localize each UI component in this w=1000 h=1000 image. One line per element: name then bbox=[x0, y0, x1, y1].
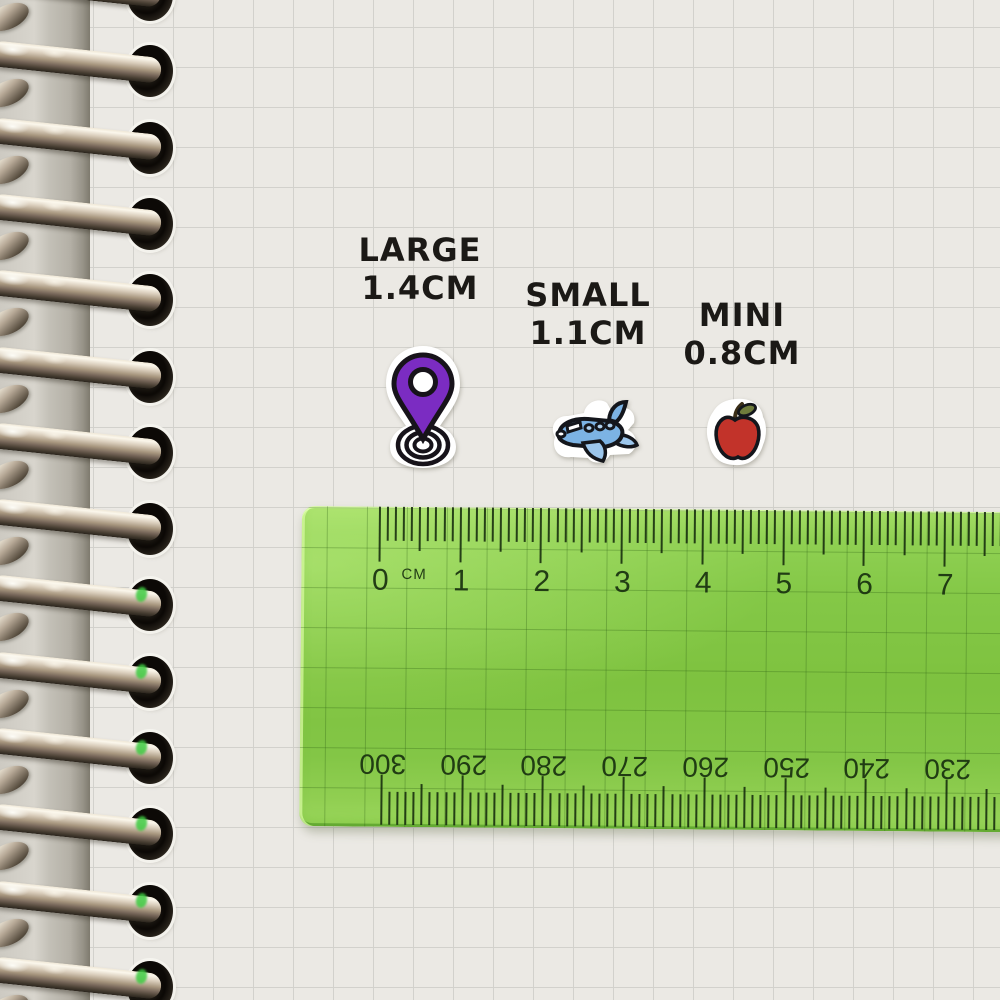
ruler-mm-tick bbox=[897, 796, 899, 829]
ruler-cm-tick bbox=[806, 510, 808, 544]
ruler-cm-tick bbox=[750, 510, 752, 544]
ruler-mm-tick bbox=[606, 794, 608, 827]
ruler-cm-number: 3 bbox=[614, 566, 631, 600]
ruler-mm-tick bbox=[404, 792, 406, 825]
ruler-cm-tick bbox=[952, 512, 954, 546]
ruler-cm-tick bbox=[613, 509, 615, 543]
ruler-mm-tick bbox=[437, 792, 439, 825]
ruler-cm-tick bbox=[960, 512, 962, 546]
ruler-cm-tick bbox=[419, 507, 421, 551]
ruler-cm-tick bbox=[839, 511, 841, 545]
ruler-cm-tick bbox=[524, 508, 526, 542]
ruler-cm-number: 6 bbox=[856, 568, 873, 602]
ruler-mm-number: 270 bbox=[601, 750, 648, 782]
ruler-cm-tick bbox=[443, 507, 445, 541]
apple-sticker bbox=[705, 397, 766, 471]
ruler-mm-tick bbox=[477, 793, 479, 826]
ruler-cm-tick bbox=[387, 507, 389, 541]
ruler-mm-tick bbox=[953, 797, 955, 830]
ruler-cm-tick bbox=[710, 510, 712, 544]
ruler-mm-tick bbox=[469, 792, 471, 825]
ruler-mm-tick bbox=[889, 796, 891, 829]
ruler-cm-tick bbox=[564, 508, 566, 542]
ruler-mm-tick bbox=[679, 794, 681, 827]
ruler-cm-number: 4 bbox=[695, 566, 712, 600]
ruler-cm-tick bbox=[831, 511, 833, 545]
size-label-small-name: SMALL bbox=[525, 276, 650, 314]
ruler-cm-tick bbox=[887, 511, 889, 545]
ruler-mm-tick bbox=[727, 795, 729, 828]
ruler-cm-tick bbox=[548, 508, 550, 542]
size-label-large-name: LARGE bbox=[359, 231, 482, 269]
ruler-mm-tick bbox=[856, 796, 858, 829]
ruler-mm-tick bbox=[493, 793, 495, 826]
ruler-mm-tick bbox=[590, 794, 592, 827]
ruler-mm-number: 300 bbox=[359, 748, 406, 780]
ruler-mm-tick bbox=[840, 796, 842, 829]
ruler-mm-tick bbox=[614, 794, 616, 827]
ruler-mm-tick bbox=[638, 794, 640, 827]
ruler-mm-tick bbox=[598, 794, 600, 827]
ruler-mm-tick bbox=[969, 797, 971, 830]
ruler-cm-tick bbox=[403, 507, 405, 541]
ruler-mm-tick bbox=[921, 796, 923, 829]
ruler-cm-tick bbox=[790, 510, 792, 544]
ruler-cm-tick bbox=[758, 510, 760, 544]
ruler-cm-tick bbox=[693, 509, 695, 543]
ruler-mm-tick bbox=[412, 792, 414, 825]
ruler-cm-tick bbox=[911, 511, 913, 545]
ruler-mm-tick bbox=[711, 795, 713, 828]
ruler-mm-tick bbox=[800, 795, 802, 828]
ruler-mm-number: 230 bbox=[924, 752, 971, 784]
ruler-mm-tick bbox=[671, 794, 673, 827]
ruler-cm-tick bbox=[968, 512, 970, 546]
ruler-cm-tick bbox=[580, 508, 582, 552]
ruler-cm-tick bbox=[467, 507, 469, 541]
ruler-mm-tick bbox=[937, 797, 939, 830]
ruler-cm-tick bbox=[508, 508, 510, 542]
size-label-mini-name: MINI bbox=[683, 296, 800, 334]
ruler-mm-tick bbox=[630, 794, 632, 827]
ruler-cm-tick bbox=[992, 512, 994, 546]
ruler-cm-tick bbox=[871, 511, 873, 545]
size-label-mini-value: 0.8CM bbox=[683, 334, 800, 372]
ruler-mm-tick bbox=[945, 780, 947, 830]
ruler-mm-tick bbox=[429, 792, 431, 825]
airplane-sticker bbox=[547, 397, 641, 468]
ruler-mm-tick bbox=[445, 792, 447, 825]
size-label-large-value: 1.4CM bbox=[359, 269, 482, 307]
ruler-cm-number: 7 bbox=[937, 569, 954, 603]
ruler-mm-tick bbox=[574, 793, 576, 826]
ruler-cm-tick bbox=[742, 510, 744, 554]
ruler-cm-tick bbox=[936, 512, 938, 546]
ruler-cm-tick bbox=[685, 509, 687, 543]
ruler-mm-tick bbox=[687, 794, 689, 827]
ruler-mm-tick bbox=[695, 794, 697, 827]
size-label-small: SMALL 1.1CM bbox=[525, 276, 650, 352]
ruler-cm-tick bbox=[766, 510, 768, 544]
ruler-cm-number: 2 bbox=[533, 565, 550, 599]
ruler-mm-tick bbox=[792, 795, 794, 828]
ruler-mm-tick bbox=[663, 786, 665, 827]
ruler-cm-tick bbox=[395, 507, 397, 541]
ruler-cm-tick bbox=[847, 511, 849, 545]
ruler-mm-tick bbox=[396, 792, 398, 825]
ruler-mm-tick bbox=[881, 796, 883, 829]
location-pin-icon bbox=[383, 344, 463, 469]
ruler-cm-tick bbox=[718, 510, 720, 544]
ruler-mm-tick bbox=[985, 789, 987, 830]
ruler-mm-tick bbox=[808, 795, 810, 828]
ruler-cm-tick bbox=[734, 510, 736, 544]
ruler-cm-number: 5 bbox=[775, 567, 792, 601]
ruler-cm-tick bbox=[556, 508, 558, 542]
ruler-unit-label: CM bbox=[401, 566, 426, 583]
ruler-cm-tick bbox=[927, 511, 929, 545]
ruler-cm-tick bbox=[597, 509, 599, 543]
ruler-cm-tick bbox=[976, 512, 978, 546]
ruler-cm-tick bbox=[411, 507, 413, 541]
ruler-mm-tick bbox=[550, 793, 552, 826]
ruler-cm-tick bbox=[637, 509, 639, 543]
ruler-cm-tick bbox=[451, 507, 453, 541]
ruler-mm-tick bbox=[517, 793, 519, 826]
ruler-cm-tick bbox=[879, 511, 881, 545]
ruler-cm-tick bbox=[516, 508, 518, 542]
size-label-large: LARGE 1.4CM bbox=[359, 231, 482, 307]
ruler-cm-tick bbox=[919, 511, 921, 545]
ruler-mm-tick bbox=[566, 793, 568, 826]
ruler-cm-tick bbox=[476, 508, 478, 542]
ruler-mm-tick bbox=[776, 795, 778, 828]
ruler-mm-tick bbox=[485, 793, 487, 826]
ruler-mm-tick bbox=[824, 788, 826, 829]
ruler-mm-number: 260 bbox=[682, 750, 729, 782]
ruler-mm-tick bbox=[848, 796, 850, 829]
ruler-mm-tick bbox=[461, 775, 463, 825]
ruler-mm-tick bbox=[977, 797, 979, 830]
ruler-cm-tick bbox=[903, 511, 905, 555]
ruler-mm-tick bbox=[929, 796, 931, 829]
location-pin-sticker bbox=[383, 344, 463, 474]
ruler-mm-tick bbox=[759, 795, 761, 828]
ruler-mm-tick bbox=[647, 794, 649, 827]
ruler-mm-tick bbox=[534, 793, 536, 826]
ruler-cm-tick bbox=[435, 507, 437, 541]
apple-icon bbox=[705, 397, 766, 466]
ruler-mm-tick bbox=[864, 779, 866, 829]
ruler-cm-tick bbox=[653, 509, 655, 543]
graph-paper-grid bbox=[86, 0, 1000, 1000]
ruler-cm-tick bbox=[855, 511, 857, 545]
ruler-mm-tick bbox=[816, 795, 818, 828]
ruler-cm-tick bbox=[798, 510, 800, 544]
ruler-cm-tick bbox=[984, 512, 986, 556]
ruler-mm-tick bbox=[913, 796, 915, 829]
ruler-cm-tick bbox=[589, 509, 591, 543]
ruler-cm-tick bbox=[484, 508, 486, 542]
ruler-cm-tick bbox=[822, 511, 824, 555]
ruler-mm-tick bbox=[768, 795, 770, 828]
ruler-cm-number: 0 bbox=[372, 564, 389, 598]
ruler: 01234567CM 300290280270260250240230 bbox=[299, 506, 1000, 832]
ruler-mm-tick bbox=[872, 796, 874, 829]
ruler-cm-tick bbox=[814, 510, 816, 544]
ruler-cm-tick bbox=[677, 509, 679, 543]
ruler-mm-tick bbox=[703, 778, 705, 828]
ruler-mm-tick bbox=[735, 795, 737, 828]
ruler-mm-tick bbox=[719, 795, 721, 828]
ruler-mm-number: 240 bbox=[843, 752, 890, 784]
airplane-icon bbox=[547, 397, 641, 463]
ruler-cm-tick bbox=[427, 507, 429, 541]
ruler-cm-tick bbox=[572, 508, 574, 542]
ruler-cm-tick bbox=[669, 509, 671, 543]
ruler-cm-number: 1 bbox=[453, 564, 470, 598]
ruler-mm-tick bbox=[558, 793, 560, 826]
ruler-mm-tick bbox=[509, 793, 511, 826]
ruler-mm-tick bbox=[655, 794, 657, 827]
ruler-mm-tick bbox=[380, 775, 382, 825]
ruler-mm-number: 280 bbox=[521, 749, 568, 781]
size-label-mini: MINI 0.8CM bbox=[683, 296, 800, 372]
ruler-mm-tick bbox=[784, 778, 786, 828]
ruler-mm-number: 250 bbox=[763, 751, 810, 783]
ruler-mm-tick bbox=[501, 785, 503, 826]
ruler-cm-tick bbox=[774, 510, 776, 544]
ruler-cm-tick bbox=[500, 508, 502, 552]
ruler-cm-tick bbox=[645, 509, 647, 543]
ruler-mm-tick bbox=[751, 795, 753, 828]
ruler-cm-tick bbox=[492, 508, 494, 542]
ruler-see-through-grid bbox=[299, 506, 1000, 832]
ruler-cm-tick bbox=[532, 508, 534, 542]
ruler-mm-tick bbox=[961, 797, 963, 830]
ruler-mm-tick bbox=[388, 792, 390, 825]
size-label-small-value: 1.1CM bbox=[525, 314, 650, 352]
ruler-cm-tick bbox=[726, 510, 728, 544]
ruler-cm-tick bbox=[661, 509, 663, 553]
ruler-mm-number: 290 bbox=[440, 748, 487, 780]
ruler-mm-tick bbox=[994, 797, 996, 830]
ruler-mm-tick bbox=[905, 788, 907, 829]
ruler-mm-tick bbox=[421, 784, 423, 825]
ruler-mm-tick bbox=[582, 785, 584, 826]
ruler-cm-tick bbox=[605, 509, 607, 543]
ruler-cm-tick bbox=[629, 509, 631, 543]
ruler-mm-tick bbox=[743, 787, 745, 828]
notebook-photo: LARGE 1.4CM SMALL 1.1CM MINI 0.8CM bbox=[0, 0, 1000, 1000]
ruler-mm-tick bbox=[525, 793, 527, 826]
ruler-cm-tick bbox=[895, 511, 897, 545]
ruler-mm-tick bbox=[832, 796, 834, 829]
ruler-mm-tick bbox=[453, 792, 455, 825]
